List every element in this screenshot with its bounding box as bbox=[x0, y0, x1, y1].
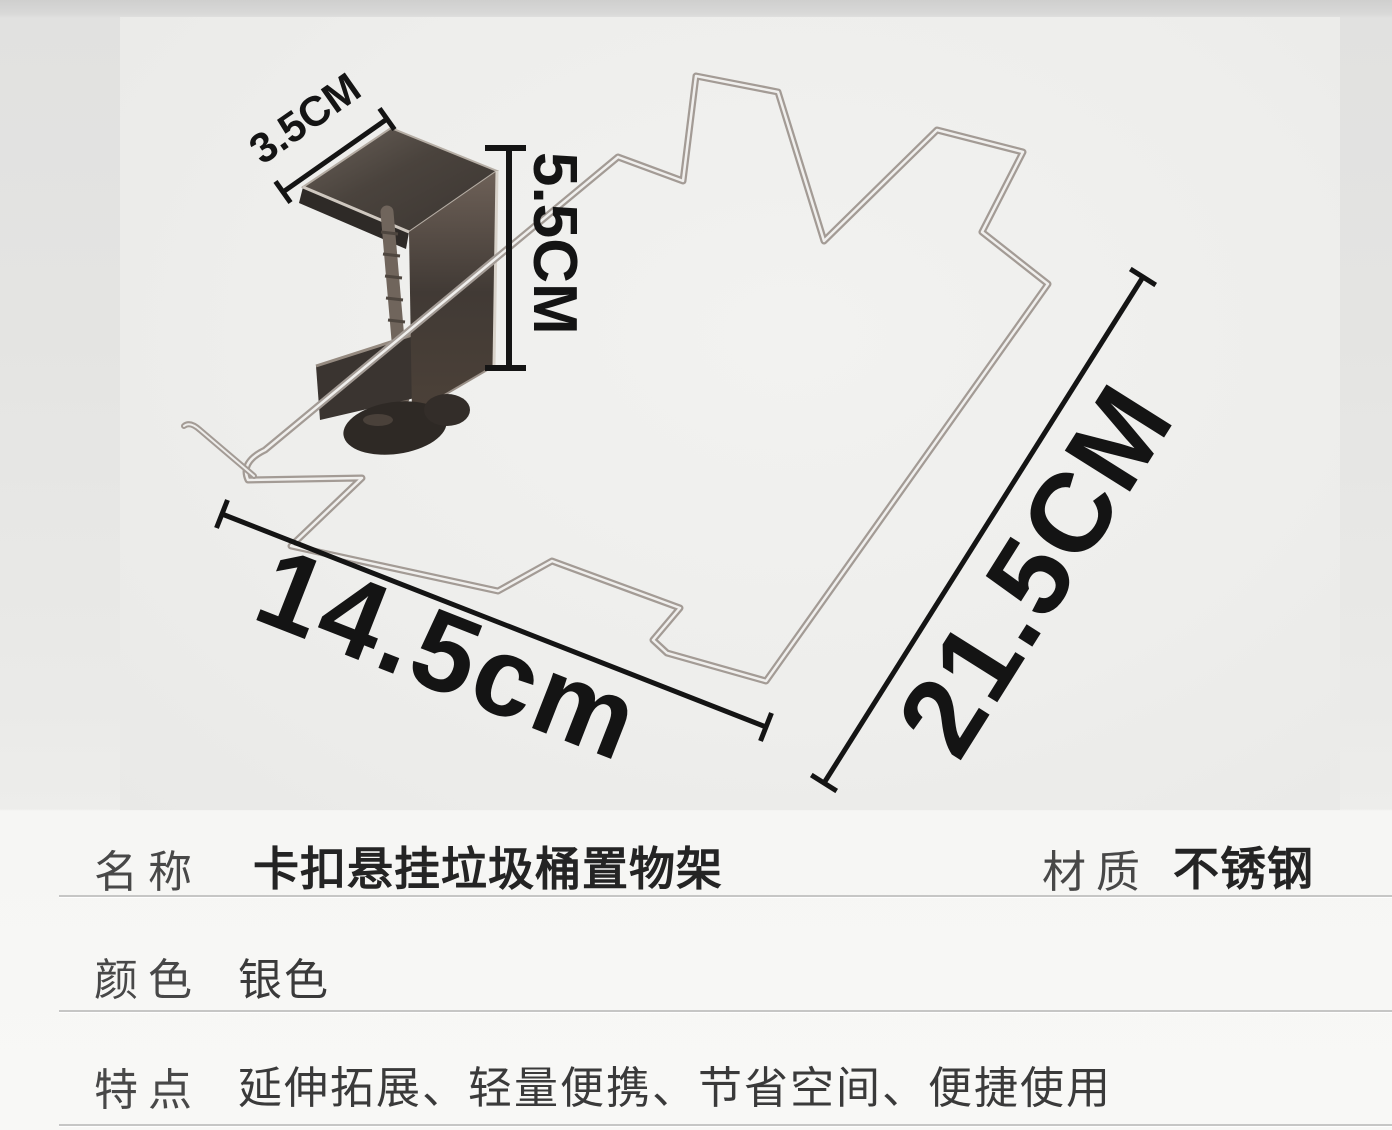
dimension-label-frame-length: 21.5CM bbox=[873, 363, 1197, 777]
dimension-frame-width: 14.5cm bbox=[217, 500, 772, 785]
spec-value-color: 银色 bbox=[238, 944, 330, 1008]
spec-label-features: 特点 bbox=[94, 1054, 202, 1118]
spec-label-name: 名称 bbox=[94, 836, 202, 900]
spec-label-color: 颜色 bbox=[94, 944, 202, 1008]
dimension-tick bbox=[380, 108, 395, 129]
spec-value-name: 卡扣悬挂垃圾桶置物架 bbox=[253, 833, 723, 899]
spec-value-features: 延伸拓展、轻量便携、节省空间、便捷使用 bbox=[238, 1052, 1112, 1116]
row-divider bbox=[59, 1124, 1392, 1126]
dimension-label-frame-width: 14.5cm bbox=[241, 523, 657, 785]
spec-value-material: 不锈钢 bbox=[1173, 833, 1314, 899]
dimension-tick bbox=[1130, 269, 1155, 285]
clamp bbox=[299, 128, 497, 461]
product-photo: 3.5CM 5.5CM 14.5cm 21.5CM bbox=[0, 0, 1392, 1130]
row-divider bbox=[59, 1010, 1392, 1012]
spec-label-material: 材质 bbox=[1042, 836, 1150, 900]
dimension-tick bbox=[811, 775, 836, 791]
product-detail-page: 3.5CM 5.5CM 14.5cm 21.5CM bbox=[0, 0, 1392, 1130]
row-divider bbox=[59, 895, 1392, 897]
dimension-label-clamp-depth: 5.5CM bbox=[520, 152, 589, 335]
dimension-tick bbox=[276, 181, 291, 202]
